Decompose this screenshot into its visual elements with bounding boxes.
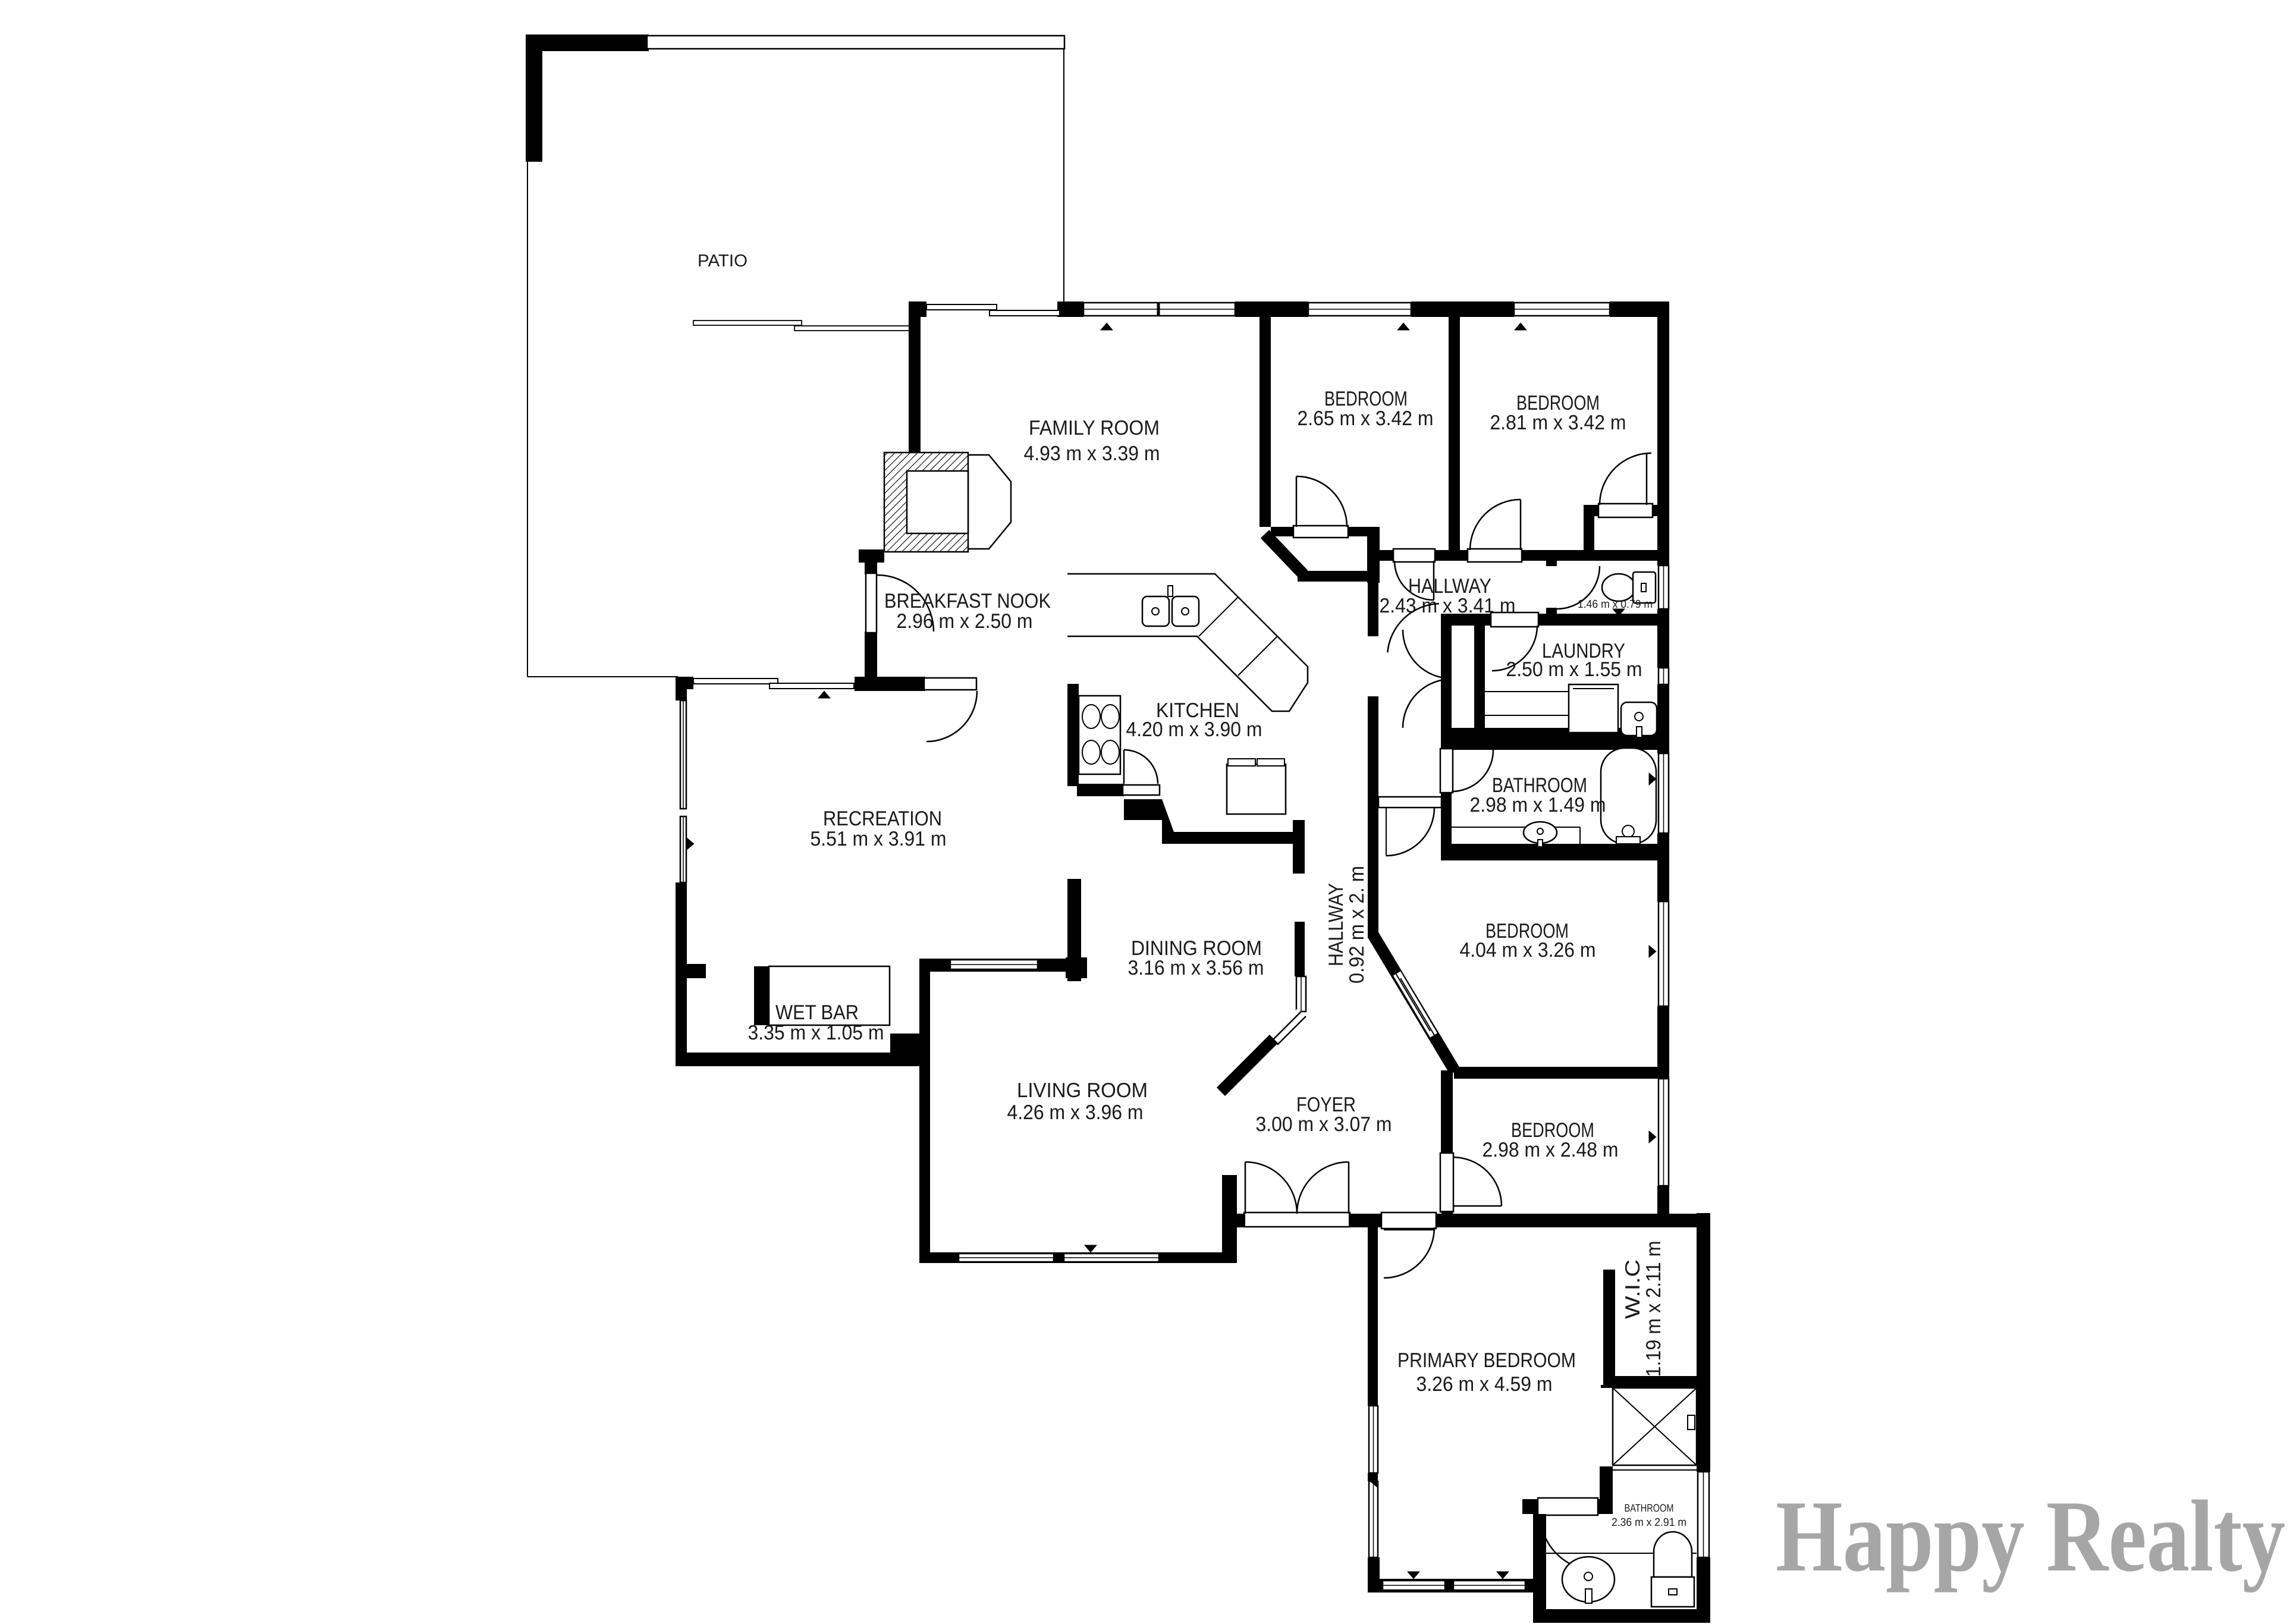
svg-text:BATHROOM: BATHROOM [1625,1502,1674,1514]
svg-text:2.96 m x 2.50 m: 2.96 m x 2.50 m [897,610,1033,633]
svg-text:Happy Realty: Happy Realty [1776,1480,2285,1593]
svg-text:LIVING ROOM: LIVING ROOM [1017,1079,1148,1102]
svg-text:BREAKFAST NOOK: BREAKFAST NOOK [884,590,1051,612]
svg-text:WET BAR: WET BAR [775,1001,859,1024]
svg-text:0.92 m x 2. m: 0.92 m x 2. m [1346,866,1368,984]
svg-text:4.26 m x 3.96 m: 4.26 m x 3.96 m [1007,1101,1144,1124]
svg-text:2.81 m x 3.42 m: 2.81 m x 3.42 m [1490,412,1626,434]
svg-text:3.00 m x 3.07 m: 3.00 m x 3.07 m [1256,1113,1392,1136]
svg-text:RECREATION: RECREATION [823,808,942,830]
svg-text:2.65 m x 3.42 m: 2.65 m x 3.42 m [1298,407,1434,430]
svg-text:4.04 m x 3.26 m: 4.04 m x 3.26 m [1460,939,1596,962]
svg-text:3.16 m x 3.56 m: 3.16 m x 3.56 m [1128,957,1264,979]
svg-text:3.26 m x 4.59 m: 3.26 m x 4.59 m [1416,1373,1553,1396]
svg-text:4.20 m x 3.90 m: 4.20 m x 3.90 m [1126,718,1262,741]
svg-text:2.98 m x 2.48 m: 2.98 m x 2.48 m [1482,1139,1619,1161]
svg-text:PATIO: PATIO [698,252,747,271]
svg-text:HALLWAY: HALLWAY [1325,883,1348,966]
svg-text:2.50 m x 1.55 m: 2.50 m x 1.55 m [1506,658,1642,681]
svg-text:3.35 m x 1.05 m: 3.35 m x 1.05 m [748,1022,884,1044]
svg-text:PRIMARY BEDROOM: PRIMARY BEDROOM [1397,1349,1576,1372]
svg-text:5.51 m x 3.91 m: 5.51 m x 3.91 m [811,828,947,850]
svg-text:1.19 m x 2.11 m: 1.19 m x 2.11 m [1642,1241,1665,1377]
svg-text:4.93 m x 3.39 m: 4.93 m x 3.39 m [1024,442,1160,465]
svg-text:FAMILY ROOM: FAMILY ROOM [1029,417,1160,439]
svg-text:2.36 m x 2.91 m: 2.36 m x 2.91 m [1612,1516,1686,1529]
svg-text:2.98 m x 1.49 m: 2.98 m x 1.49 m [1470,794,1606,816]
svg-text:W.I.C: W.I.C [1622,1259,1644,1319]
